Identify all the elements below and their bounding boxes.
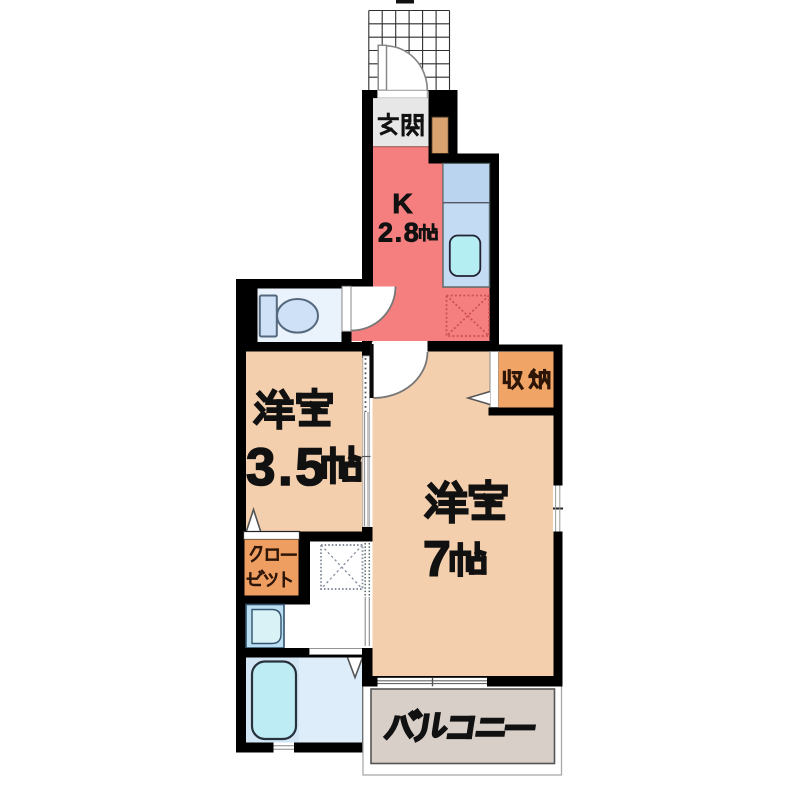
svg-text:3.5: 3.5 xyxy=(246,438,327,497)
svg-text:K: K xyxy=(392,188,412,219)
svg-text:2.8: 2.8 xyxy=(378,218,420,248)
svg-text:7: 7 xyxy=(423,531,451,587)
